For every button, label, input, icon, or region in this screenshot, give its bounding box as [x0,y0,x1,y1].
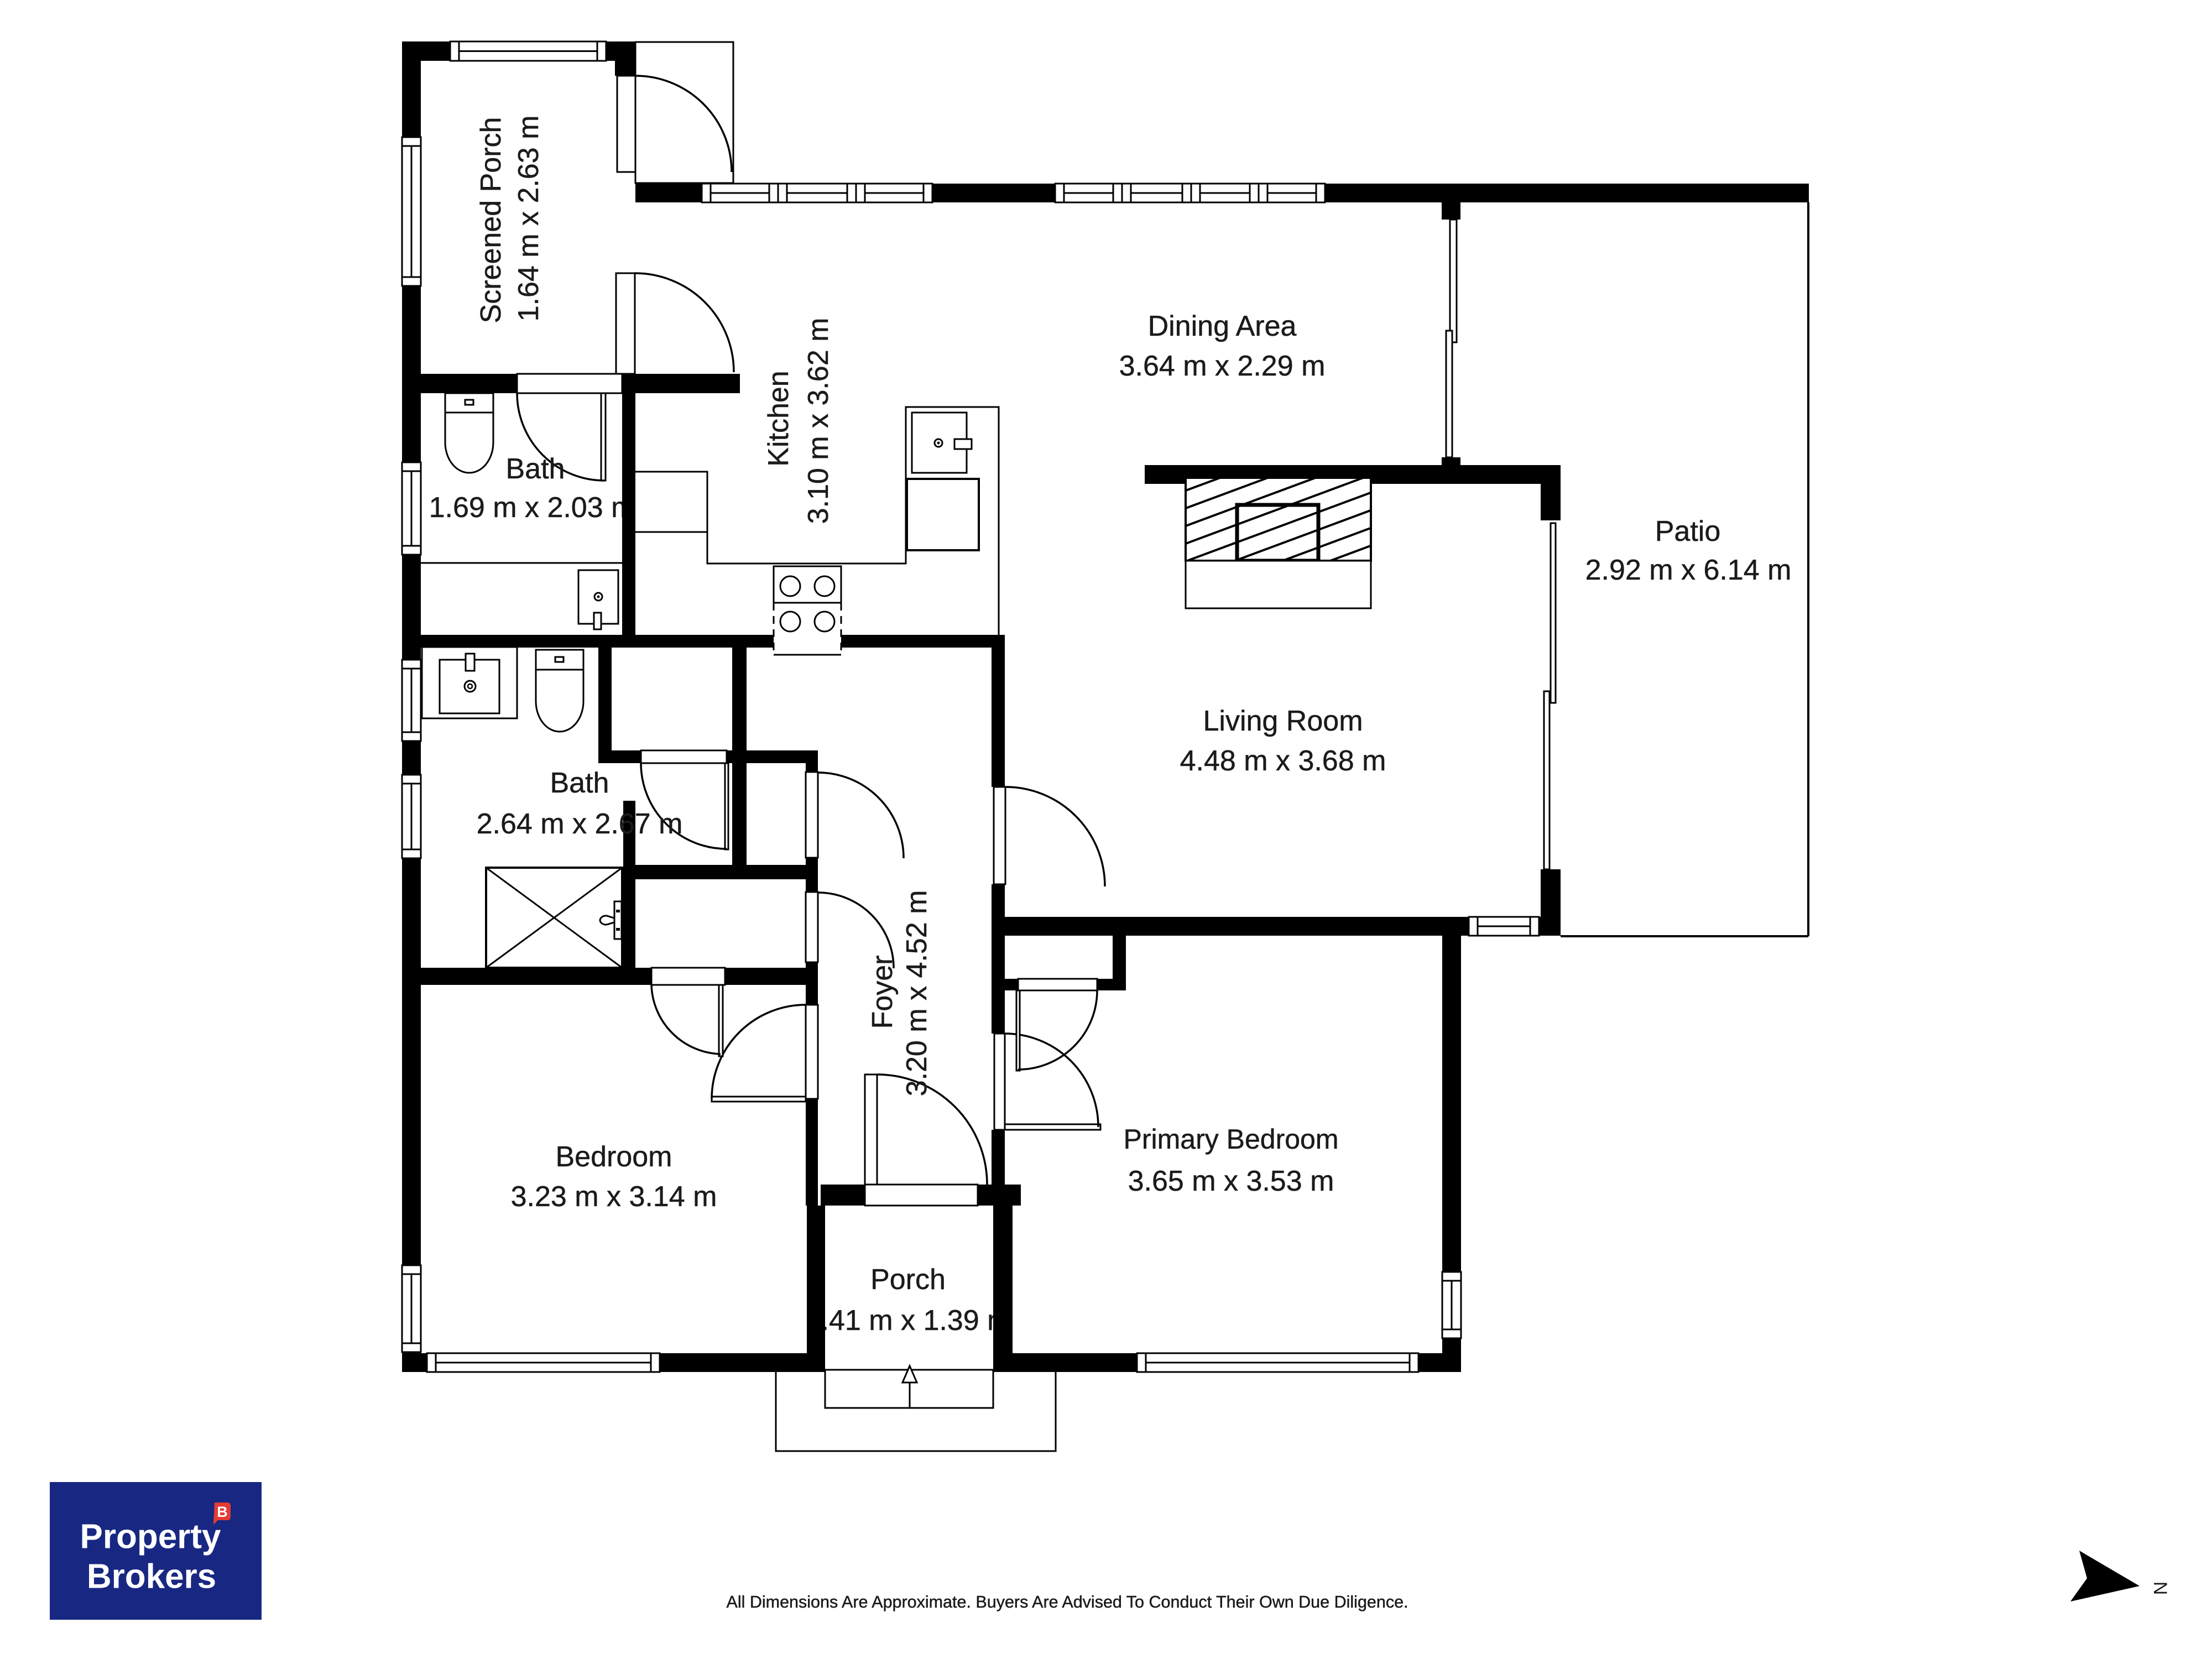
svg-text:Foyer: Foyer [867,956,899,1029]
svg-text:3.23 m x 3.14 m: 3.23 m x 3.14 m [511,1181,717,1213]
svg-text:3.10 m x 3.62 m: 3.10 m x 3.62 m [802,318,834,524]
svg-text:Bath: Bath [506,453,565,485]
svg-text:3.65 m x 3.53 m: 3.65 m x 3.53 m [1128,1165,1334,1197]
svg-text:N: N [2150,1582,2171,1595]
svg-text:Screened Porch: Screened Porch [475,117,507,324]
svg-text:Living Room: Living Room [1203,705,1363,737]
svg-text:4.48 m x 3.68 m: 4.48 m x 3.68 m [1180,745,1386,777]
svg-text:1.69 m x 2.03 m: 1.69 m x 2.03 m [429,492,635,524]
svg-text:1.64 m x 2.63 m: 1.64 m x 2.63 m [513,116,545,322]
svg-text:All Dimensions Are Approximate: All Dimensions Are Approximate. Buyers A… [726,1593,1408,1611]
svg-text:3.20 m x 4.52 m: 3.20 m x 4.52 m [901,890,933,1097]
svg-text:Bedroom: Bedroom [556,1141,672,1173]
svg-text:B: B [217,1504,228,1520]
svg-text:3.64 m x 2.29 m: 3.64 m x 2.29 m [1119,350,1326,382]
svg-text:Property: Property [80,1518,221,1556]
svg-text:Kitchen: Kitchen [763,371,795,466]
svg-text:Bath: Bath [550,767,609,799]
svg-text:2.92 m x 6.14 m: 2.92 m x 6.14 m [1585,554,1792,586]
svg-text:Primary Bedroom: Primary Bedroom [1124,1124,1339,1155]
svg-text:Brokers: Brokers [87,1558,216,1596]
svg-text:Porch: Porch [870,1264,946,1296]
svg-text:1.41 m x 1.39 m: 1.41 m x 1.39 m [805,1305,1011,1337]
svg-text:Dining Area: Dining Area [1148,310,1297,342]
svg-text:2.64 m x 2.67 m: 2.64 m x 2.67 m [477,808,683,840]
svg-text:Patio: Patio [1655,515,1721,547]
